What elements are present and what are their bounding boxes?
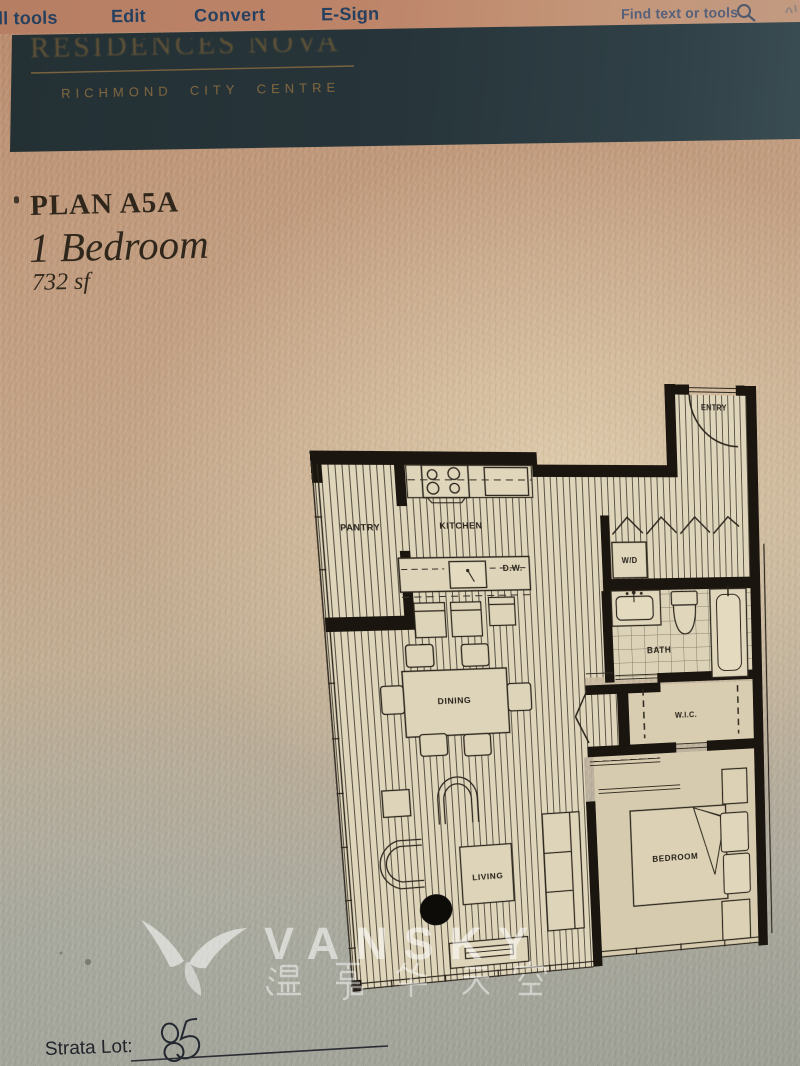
svg-text:VANSKY: VANSKY: [264, 918, 544, 969]
svg-text:Strata Lot:: Strata Lot:: [45, 1036, 133, 1060]
